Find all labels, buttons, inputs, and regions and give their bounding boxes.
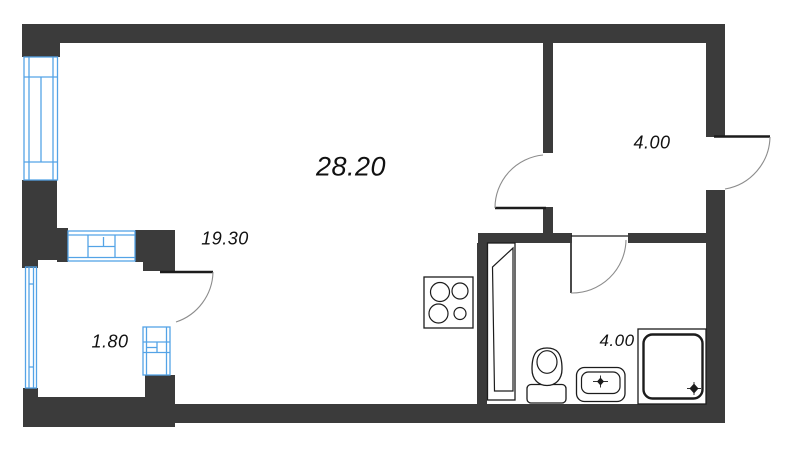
- wall-right-upper: [706, 43, 725, 137]
- door-balcony-icon: [160, 272, 213, 322]
- wall-left-middle-step: [57, 228, 68, 262]
- floor-plan: 28.20 19.30 4.00 4.00 1.80: [0, 0, 800, 452]
- wall-hall-divider-upper: [543, 43, 553, 153]
- ventilation-shaft-icon: [488, 243, 516, 400]
- wall-kitchen-window-block-step: [143, 262, 175, 271]
- door-bathroom-icon: [571, 236, 628, 293]
- toilet-icon: [527, 348, 566, 403]
- room-label-living-room: 28.20: [316, 152, 386, 183]
- room-label-bathroom: 4.00: [599, 331, 634, 351]
- room-label-balcony: 1.80: [91, 332, 128, 353]
- door-hallway-icon: [495, 155, 546, 208]
- shower-tray-icon: [638, 329, 706, 404]
- wall-hall-divider-lower: [543, 207, 553, 235]
- walls: [22, 24, 725, 427]
- wall-balcony-bottom: [23, 397, 145, 427]
- balcony-glazing-icon: [26, 267, 37, 388]
- floor-plan-drawing: [0, 0, 800, 452]
- sink-icon: [577, 368, 626, 402]
- room-label-hallway: 4.00: [633, 133, 670, 154]
- cooktop-icon: [424, 277, 473, 328]
- wall-right-lower: [706, 190, 725, 423]
- wall-balcony-right-block: [145, 375, 175, 427]
- door-entrance-icon: [714, 137, 770, 190]
- wall-bathroom-left: [477, 243, 487, 406]
- wall-corner-top-left: [22, 43, 60, 57]
- wall-kitchen-window-block: [135, 230, 175, 262]
- window-kitchen-balcony-icon: [68, 231, 135, 261]
- room-label-kitchen-zone: 19.30: [201, 229, 249, 250]
- window-left-icon: [24, 57, 58, 180]
- wall-bottom-main: [175, 404, 724, 423]
- wall-bathroom-top-left: [478, 233, 572, 243]
- wall-top: [22, 24, 725, 43]
- wall-left-middle: [22, 180, 57, 260]
- window-balcony-right-icon: [143, 327, 170, 375]
- wall-bathroom-top-right: [628, 233, 706, 243]
